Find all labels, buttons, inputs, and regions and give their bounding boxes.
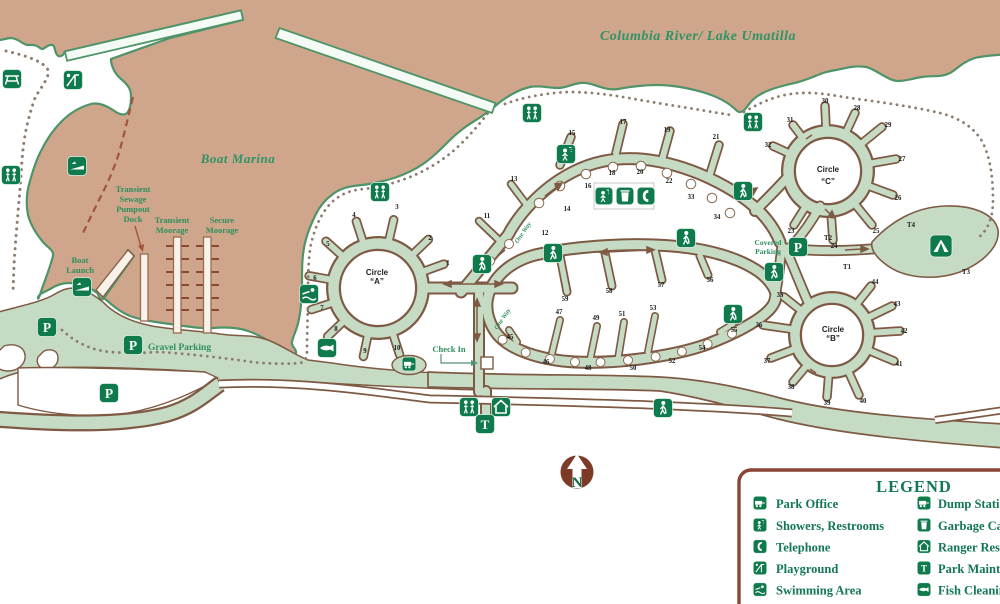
svg-text:50: 50 — [630, 365, 637, 372]
svg-text:38: 38 — [788, 384, 795, 391]
svg-text:Moorage: Moorage — [156, 225, 189, 235]
svg-text:Parking: Parking — [755, 247, 781, 256]
svg-text:25: 25 — [873, 228, 880, 235]
svg-text:41: 41 — [896, 361, 903, 368]
svg-text:22: 22 — [666, 178, 673, 185]
svg-text:Check In: Check In — [432, 344, 466, 354]
svg-text:T3: T3 — [962, 269, 971, 276]
svg-text:Swimming Area: Swimming Area — [776, 584, 862, 598]
svg-text:18: 18 — [609, 170, 616, 177]
svg-text:59: 59 — [562, 296, 569, 303]
svg-text:23: 23 — [788, 228, 795, 235]
svg-text:Boat: Boat — [72, 255, 89, 265]
svg-text:39: 39 — [824, 400, 831, 407]
svg-text:51: 51 — [619, 311, 626, 318]
svg-text:35: 35 — [777, 292, 784, 299]
svg-text:Ranger Residence: Ranger Residence — [938, 541, 1000, 555]
svg-text:Circle: Circle — [822, 325, 845, 334]
svg-text:8: 8 — [334, 326, 338, 333]
svg-text:16: 16 — [585, 183, 592, 190]
svg-text:Secure: Secure — [210, 215, 235, 225]
svg-text:Circle: Circle — [366, 268, 389, 277]
svg-text:21: 21 — [713, 134, 720, 141]
svg-text:53: 53 — [650, 305, 657, 312]
svg-text:34: 34 — [714, 214, 721, 221]
svg-text:Boat Marina: Boat Marina — [200, 151, 276, 166]
svg-text:Park Maintenance: Park Maintenance — [938, 562, 1000, 576]
svg-text:56: 56 — [707, 277, 714, 284]
svg-text:15: 15 — [569, 130, 576, 137]
svg-text:Dock: Dock — [124, 214, 143, 224]
svg-text:4: 4 — [352, 212, 356, 219]
svg-text:Moorage: Moorage — [206, 225, 239, 235]
svg-text:1: 1 — [446, 260, 450, 267]
svg-text:46: 46 — [543, 359, 550, 366]
svg-text:Transient: Transient — [155, 215, 190, 225]
svg-text:10: 10 — [394, 345, 401, 352]
svg-text:3: 3 — [395, 204, 399, 211]
svg-text:Transient: Transient — [116, 184, 151, 194]
svg-text:52: 52 — [669, 358, 676, 365]
svg-text:28: 28 — [854, 105, 861, 112]
svg-text:Sewage: Sewage — [120, 194, 147, 204]
svg-text:Columbia River/ Lake Umatilla: Columbia River/ Lake Umatilla — [600, 29, 796, 44]
svg-text:“A”: “A” — [370, 277, 384, 286]
svg-text:Park Office: Park Office — [776, 497, 839, 511]
svg-text:29: 29 — [885, 122, 892, 129]
svg-text:43: 43 — [894, 301, 901, 308]
svg-text:48: 48 — [585, 365, 592, 372]
svg-text:14: 14 — [564, 206, 571, 213]
svg-text:N: N — [572, 475, 583, 491]
svg-text:“B”: “B” — [826, 334, 840, 343]
svg-text:57: 57 — [658, 282, 665, 289]
svg-text:Showers, Restrooms: Showers, Restrooms — [776, 519, 884, 533]
svg-text:Pumpout: Pumpout — [116, 204, 150, 214]
svg-text:47: 47 — [556, 309, 563, 316]
svg-text:58: 58 — [606, 288, 613, 295]
svg-text:12: 12 — [542, 230, 549, 237]
svg-text:Dump Station: Dump Station — [938, 497, 1000, 511]
svg-text:Launch: Launch — [66, 265, 94, 275]
svg-text:Telephone: Telephone — [776, 541, 831, 555]
svg-text:40: 40 — [860, 398, 867, 405]
svg-text:27: 27 — [899, 156, 906, 163]
svg-text:6: 6 — [313, 275, 317, 282]
svg-text:30: 30 — [822, 98, 829, 105]
svg-text:44: 44 — [872, 279, 879, 286]
svg-text:19: 19 — [664, 127, 671, 134]
svg-text:24: 24 — [831, 243, 838, 250]
svg-text:T1: T1 — [843, 264, 852, 271]
svg-text:20: 20 — [637, 169, 644, 176]
svg-text:54: 54 — [699, 345, 706, 352]
svg-text:32: 32 — [765, 142, 772, 149]
svg-text:26: 26 — [895, 195, 902, 202]
svg-text:T4: T4 — [907, 222, 916, 229]
svg-text:5: 5 — [326, 241, 330, 248]
svg-text:42: 42 — [901, 328, 908, 335]
svg-text:13: 13 — [511, 176, 518, 183]
svg-text:45: 45 — [507, 334, 514, 341]
svg-text:7: 7 — [320, 305, 324, 312]
svg-text:Covered: Covered — [755, 238, 783, 247]
svg-text:2: 2 — [428, 235, 432, 242]
svg-text:37: 37 — [764, 358, 771, 365]
svg-text:LEGEND: LEGEND — [876, 477, 952, 496]
svg-text:55: 55 — [731, 327, 738, 334]
svg-text:9: 9 — [363, 348, 367, 355]
svg-text:T2: T2 — [824, 235, 833, 242]
svg-text:17: 17 — [620, 119, 627, 126]
svg-text:49: 49 — [593, 315, 600, 322]
svg-text:Gravel Parking: Gravel Parking — [148, 343, 211, 353]
svg-text:31: 31 — [787, 117, 794, 124]
svg-text:Garbage Cans: Garbage Cans — [938, 519, 1000, 533]
svg-text:11: 11 — [484, 213, 491, 220]
svg-text:Circle: Circle — [817, 165, 840, 174]
svg-text:“C”: “C” — [821, 177, 835, 186]
svg-text:33: 33 — [688, 194, 695, 201]
svg-text:Fish Cleaning: Fish Cleaning — [938, 584, 1000, 598]
svg-text:Playground: Playground — [776, 562, 838, 576]
svg-text:36: 36 — [756, 322, 763, 329]
